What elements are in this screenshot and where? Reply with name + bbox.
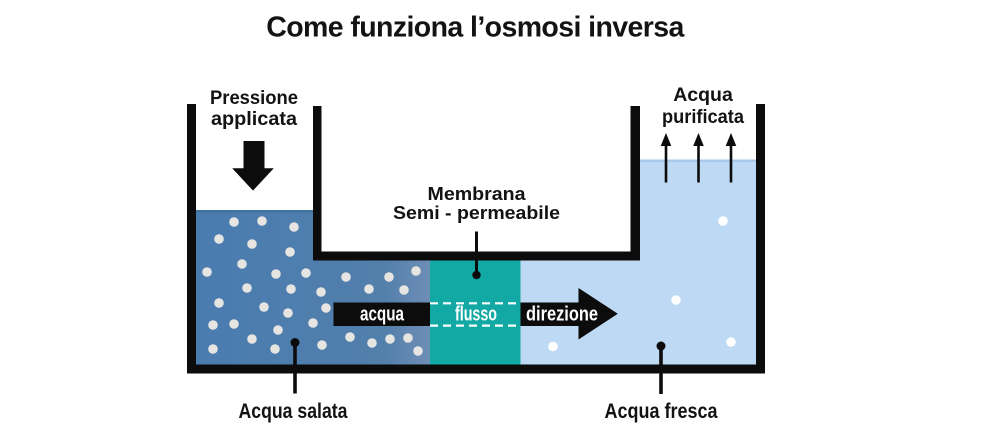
svg-text:Membrana: Membrana: [428, 183, 527, 204]
svg-text:Acqua fresca: Acqua fresca: [605, 400, 718, 423]
svg-text:acqua: acqua: [360, 303, 404, 326]
svg-text:applicata: applicata: [211, 108, 297, 130]
svg-text:Acqua salata: Acqua salata: [239, 400, 348, 423]
svg-text:Acqua: Acqua: [673, 84, 733, 106]
svg-text:direzione: direzione: [526, 303, 598, 326]
svg-text:Come funziona l’osmosi inversa: Come funziona l’osmosi inversa: [266, 12, 685, 44]
svg-text:Pressione: Pressione: [210, 87, 298, 109]
svg-text:Semi - permeabile: Semi - permeabile: [393, 202, 560, 223]
svg-text:flusso: flusso: [455, 303, 497, 326]
svg-text:purificata: purificata: [662, 106, 744, 128]
